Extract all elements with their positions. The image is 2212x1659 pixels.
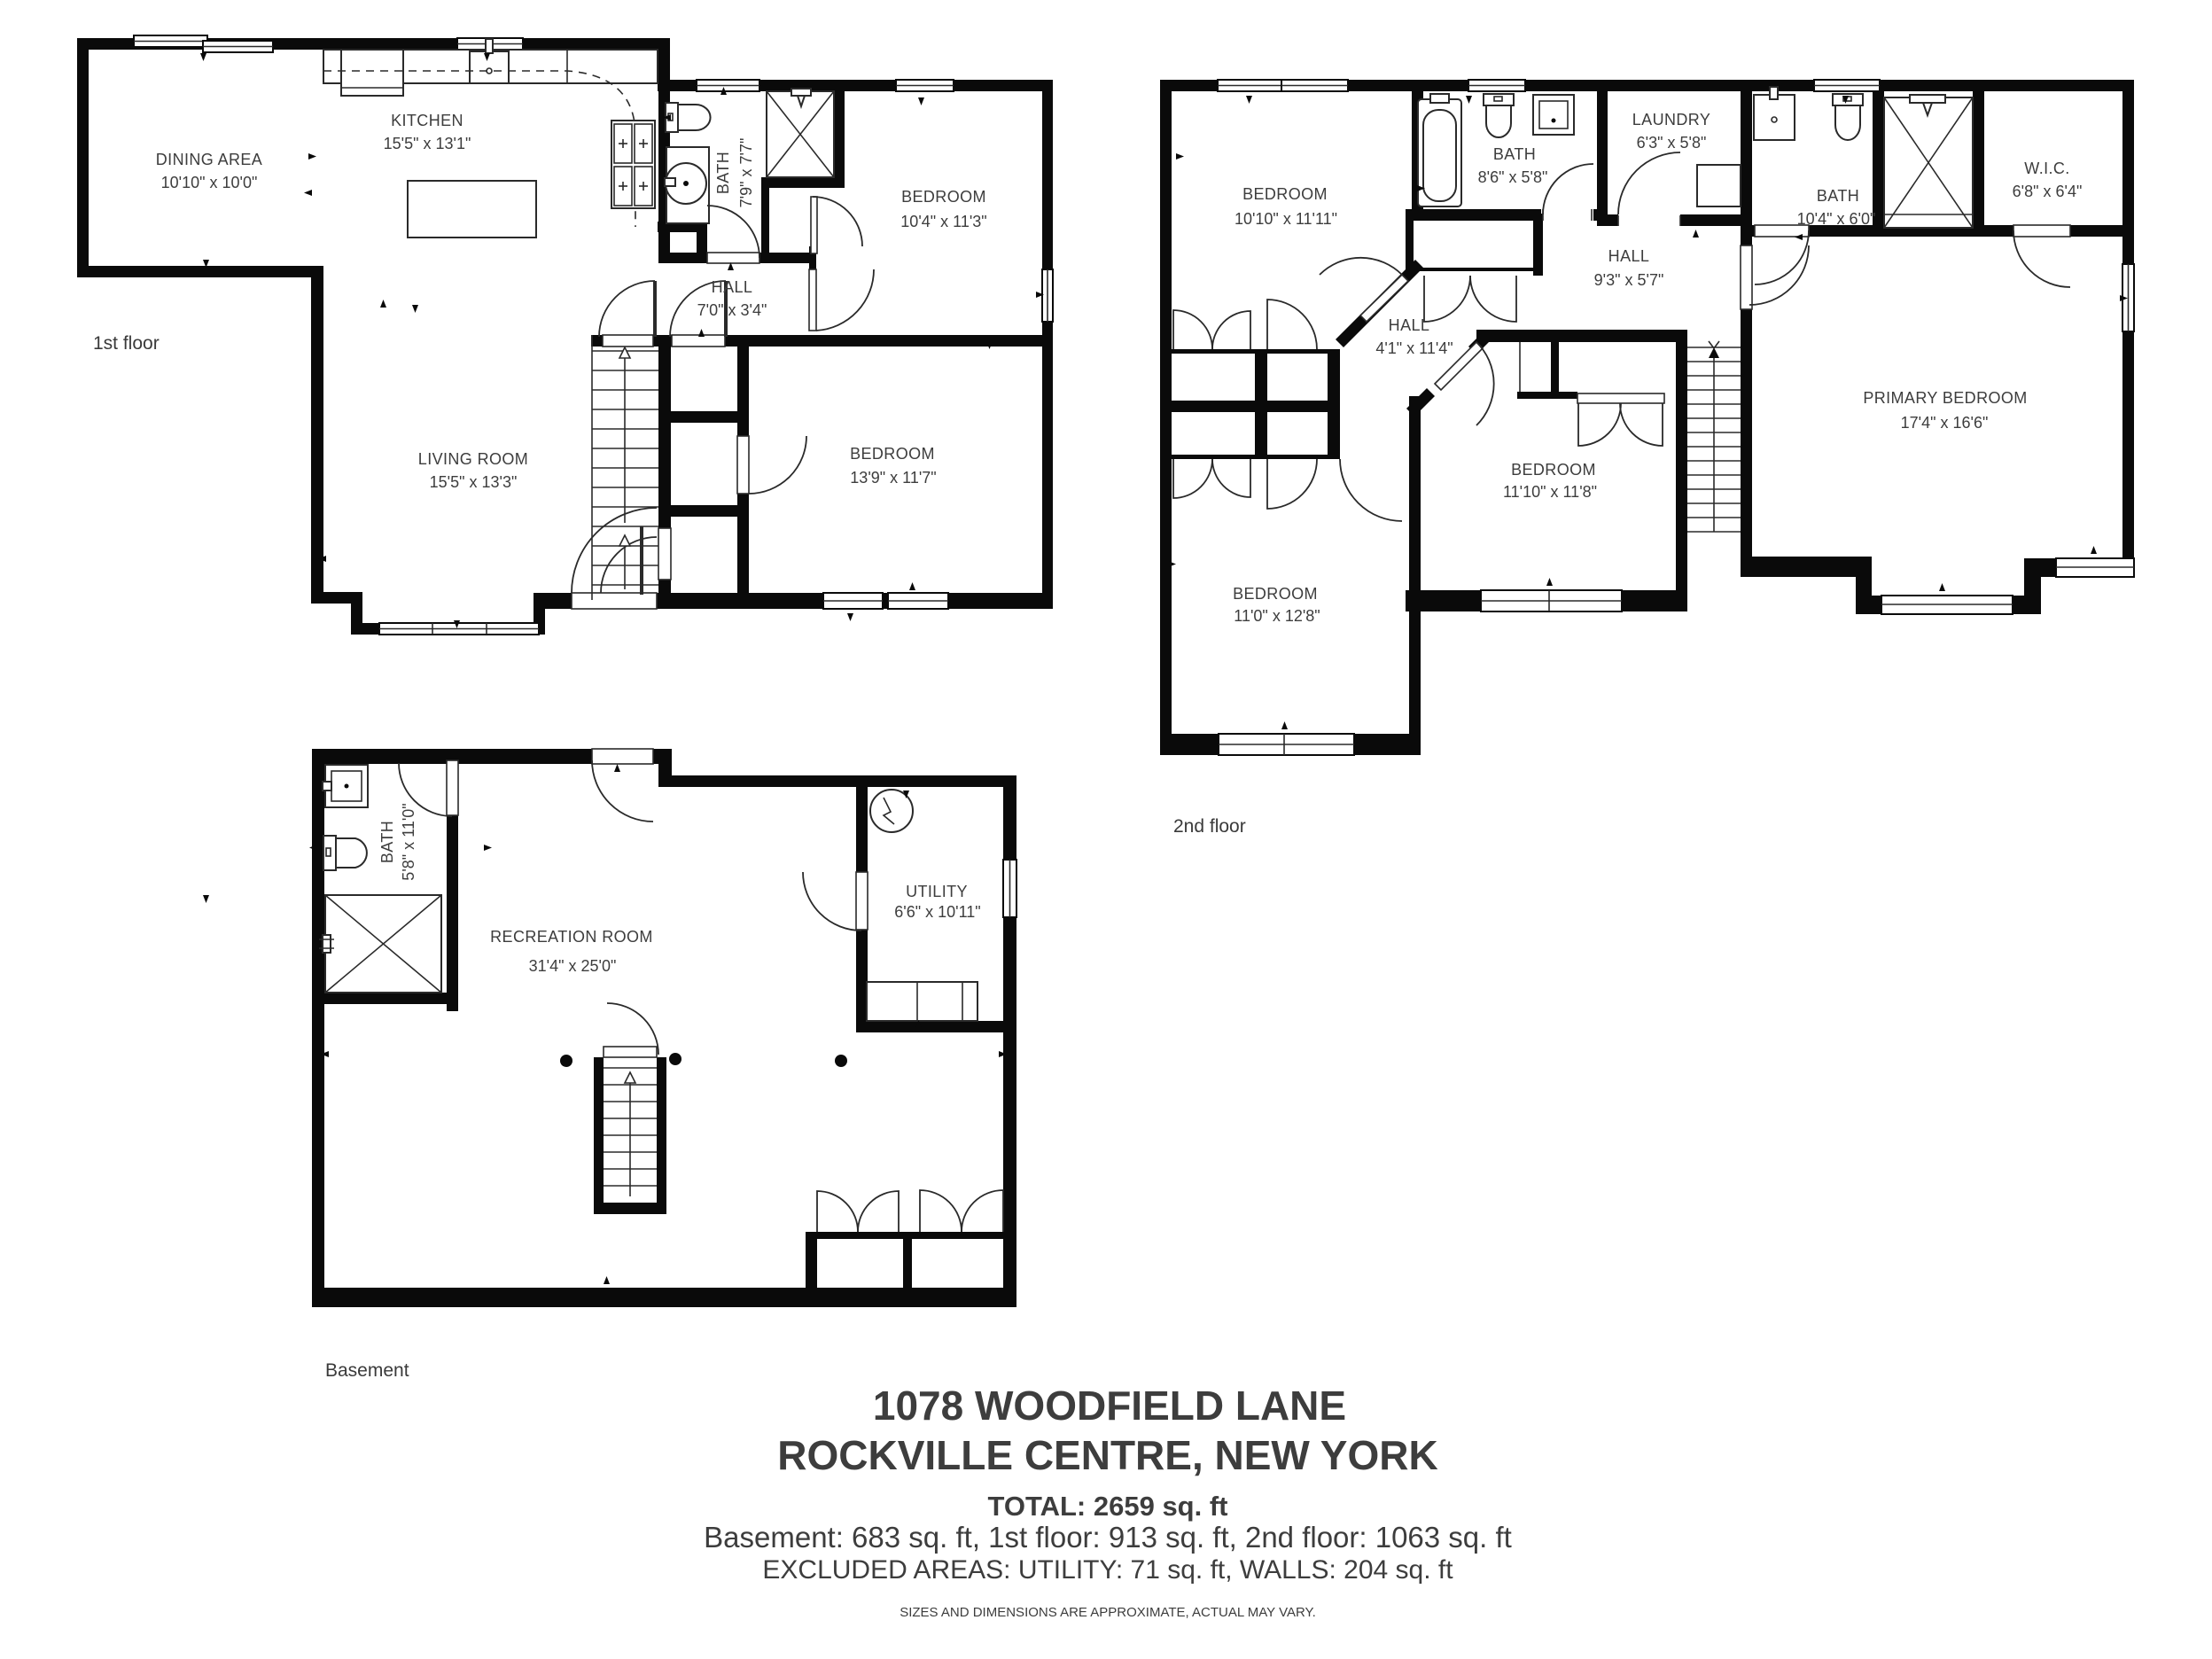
svg-text:LAUNDRY: LAUNDRY [1632,111,1711,129]
svg-text:HALL: HALL [1608,247,1650,265]
svg-text:31'4" x 25'0": 31'4" x 25'0" [529,957,617,975]
svg-text:TOTAL: 2659 sq. ft: TOTAL: 2659 sq. ft [987,1491,1227,1522]
svg-text:8'6" x 5'8": 8'6" x 5'8" [1478,168,1548,186]
svg-text:1st floor: 1st floor [93,333,160,354]
svg-text:10'4" x 6'0": 10'4" x 6'0" [1797,210,1876,228]
svg-text:2nd floor: 2nd floor [1173,816,1246,837]
svg-text:RECREATION ROOM: RECREATION ROOM [490,928,653,946]
svg-text:LIVING ROOM: LIVING ROOM [418,450,528,468]
svg-text:Basement: Basement [325,1360,409,1381]
svg-text:6'6" x 10'11": 6'6" x 10'11" [894,903,980,921]
svg-text:1078 WOODFIELD LANE: 1078 WOODFIELD LANE [873,1382,1346,1429]
svg-text:10'4" x 11'3": 10'4" x 11'3" [900,213,986,230]
svg-text:HALL: HALL [1389,316,1430,334]
svg-text:5'8" x 11'0": 5'8" x 11'0" [400,803,417,880]
svg-text:HALL: HALL [712,278,753,296]
svg-text:6'8" x 6'4": 6'8" x 6'4" [2013,183,2083,200]
svg-text:BATH: BATH [714,152,732,194]
svg-text:BATH: BATH [1817,187,1859,205]
svg-text:W.I.C.: W.I.C. [2024,160,2069,177]
svg-text:7'9" x 7'7": 7'9" x 7'7" [737,138,755,208]
svg-text:KITCHEN: KITCHEN [391,112,463,129]
svg-text:11'10" x 11'8": 11'10" x 11'8" [1503,483,1597,501]
svg-text:DINING AREA: DINING AREA [156,151,262,168]
svg-text:13'9" x 11'7": 13'9" x 11'7" [850,469,936,487]
svg-text:11'0" x 12'8": 11'0" x 12'8" [1234,607,1320,625]
svg-text:BEDROOM: BEDROOM [901,188,986,206]
svg-text:BEDROOM: BEDROOM [1511,461,1596,479]
svg-text:7'0" x 3'4": 7'0" x 3'4" [697,301,767,319]
svg-text:10'10" x 11'11": 10'10" x 11'11" [1235,210,1337,228]
svg-text:SIZES AND DIMENSIONS ARE APPRO: SIZES AND DIMENSIONS ARE APPROXIMATE, AC… [900,1605,1316,1620]
svg-text:15'5" x 13'1": 15'5" x 13'1" [384,135,471,152]
svg-text:BATH: BATH [1493,145,1536,163]
svg-text:6'3" x 5'8": 6'3" x 5'8" [1637,134,1707,152]
svg-text:10'10" x 10'0": 10'10" x 10'0" [161,174,258,191]
svg-text:ROCKVILLE CENTRE, NEW YORK: ROCKVILLE CENTRE, NEW YORK [777,1432,1437,1478]
svg-text:15'5" x 13'3": 15'5" x 13'3" [430,473,518,491]
svg-text:BEDROOM: BEDROOM [1233,585,1318,603]
svg-text:BEDROOM: BEDROOM [1242,185,1328,203]
svg-text:PRIMARY BEDROOM: PRIMARY BEDROOM [1863,389,2027,407]
svg-text:4'1" x 11'4": 4'1" x 11'4" [1375,339,1453,357]
svg-text:EXCLUDED AREAS: UTILITY: 71 sq: EXCLUDED AREAS: UTILITY: 71 sq. ft, WALL… [762,1555,1453,1585]
svg-text:BATH: BATH [378,821,396,863]
svg-text:Basement: 683 sq. ft, 1st floo: Basement: 683 sq. ft, 1st floor: 913 sq.… [704,1521,1512,1554]
svg-text:UTILITY: UTILITY [906,883,968,900]
svg-text:9'3" x 5'7": 9'3" x 5'7" [1594,271,1664,289]
svg-text:17'4" x 16'6": 17'4" x 16'6" [1901,414,1989,432]
svg-text:BEDROOM: BEDROOM [850,445,935,463]
